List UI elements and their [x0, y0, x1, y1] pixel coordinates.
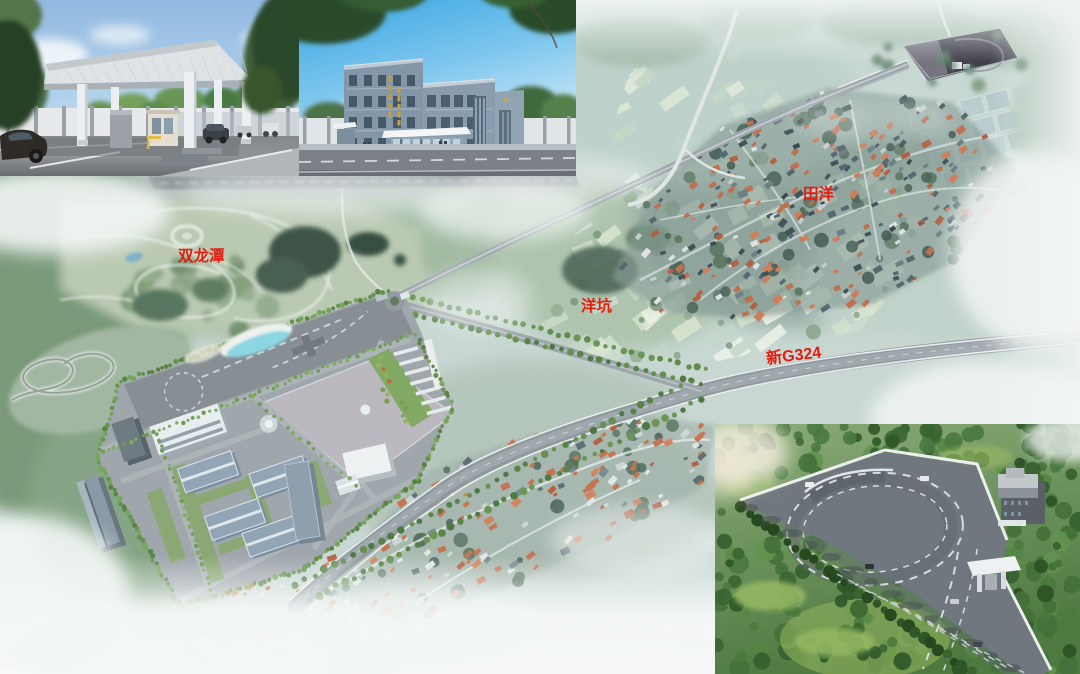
svg-text:双龙潭: 双龙潭 [178, 246, 225, 265]
svg-text:洋坑: 洋坑 [581, 296, 613, 315]
svg-text:田洋: 田洋 [803, 184, 835, 203]
